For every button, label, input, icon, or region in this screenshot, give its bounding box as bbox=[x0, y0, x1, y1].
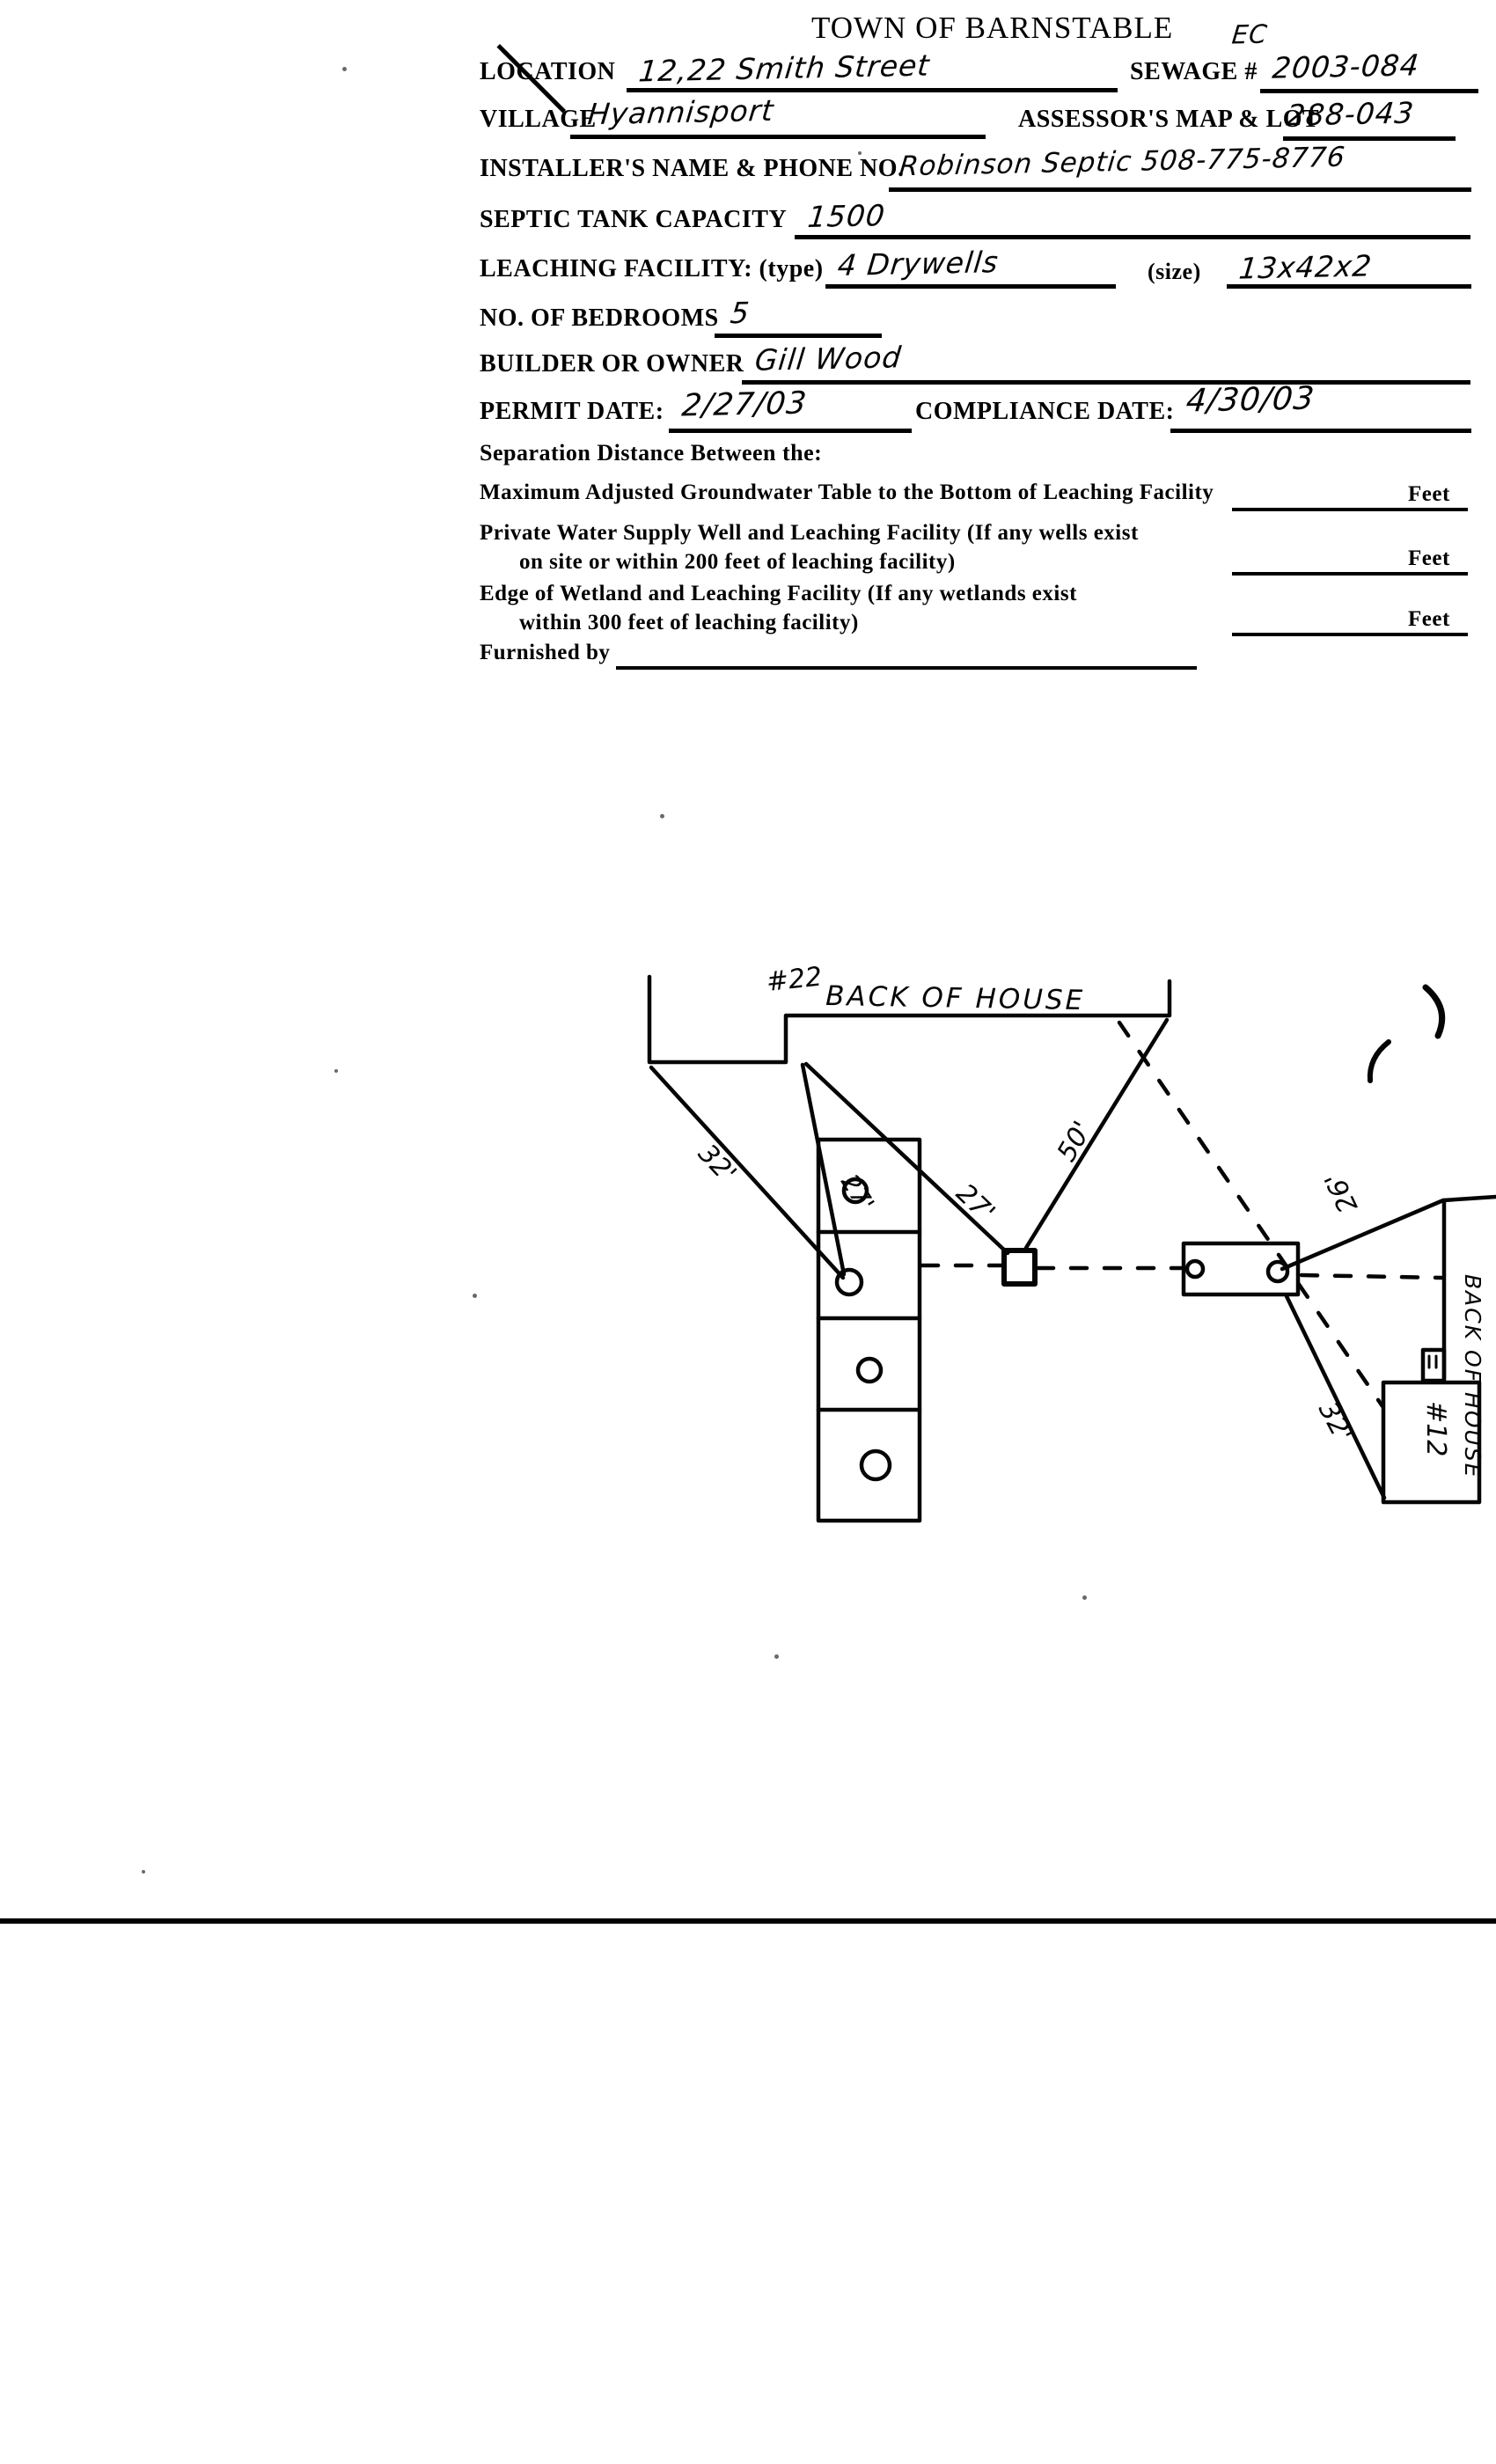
location-value: 12,22 Smith Street bbox=[637, 48, 931, 88]
separation-row1-text: Maximum Adjusted Groundwater Table to th… bbox=[480, 480, 1214, 505]
separation-row3-unit: Feet bbox=[1408, 607, 1450, 632]
scan-speck bbox=[774, 1654, 779, 1659]
septic-capacity-value: 1500 bbox=[806, 198, 887, 234]
permit-date-underline bbox=[669, 429, 912, 433]
builder-underline bbox=[742, 380, 1470, 385]
leaching-label: LEACHING FACILITY: (type) bbox=[480, 255, 824, 283]
separation-row1-unit: Feet bbox=[1408, 482, 1450, 507]
scan-speck bbox=[142, 1870, 145, 1874]
permit-date-label: PERMIT DATE: bbox=[480, 398, 664, 426]
scan-speck bbox=[660, 814, 664, 818]
stray-arc-left bbox=[1370, 1042, 1389, 1081]
page-divider-rule bbox=[0, 1918, 1496, 1924]
furnished-by-label: Furnished by bbox=[480, 641, 610, 665]
dim-line-32-lower bbox=[1287, 1296, 1384, 1498]
leaching-size-value: 13x42x2 bbox=[1237, 248, 1374, 285]
scanned-permit-page: TOWN OF BARNSTABLE EC LOCATION 12,22 Smi… bbox=[0, 0, 1496, 2464]
scan-speck bbox=[858, 151, 862, 155]
septic-capacity-underline bbox=[795, 235, 1470, 239]
house2-steps-ticks bbox=[1429, 1356, 1436, 1368]
scan-speck bbox=[342, 67, 347, 71]
installer-underline bbox=[889, 187, 1471, 192]
bedrooms-value: 5 bbox=[729, 296, 752, 331]
drywell-3-circle bbox=[858, 1359, 881, 1382]
septic-capacity-label: SEPTIC TANK CAPACITY bbox=[480, 206, 787, 234]
bedrooms-label: NO. OF BEDROOMS bbox=[480, 304, 719, 333]
scan-speck bbox=[1082, 1595, 1087, 1600]
scan-speck bbox=[473, 1294, 477, 1298]
builder-label: BUILDER OR OWNER bbox=[480, 350, 744, 378]
dim-line-32-upper bbox=[651, 1067, 843, 1278]
stray-arc-right bbox=[1426, 987, 1442, 1036]
distribution-box bbox=[1004, 1250, 1035, 1284]
assessors-label: ASSESSOR'S MAP & LOT bbox=[1018, 106, 1319, 134]
compliance-date-value: 4/30/03 bbox=[1184, 380, 1316, 419]
handwritten-corner-note: EC bbox=[1230, 19, 1269, 50]
house2-number-label: #12 bbox=[1420, 1401, 1451, 1456]
dim-27-inner-label: 27' bbox=[835, 1169, 880, 1216]
compliance-date-label: COMPLIANCE DATE: bbox=[915, 398, 1174, 426]
dim-26-label: 26' bbox=[1319, 1168, 1364, 1218]
dim-line-26 bbox=[1282, 1197, 1496, 1269]
house2-back-label: BACK OF HOUSE bbox=[1460, 1274, 1485, 1479]
dim-50-label: 50' bbox=[1052, 1116, 1099, 1167]
permit-date-value: 2/27/03 bbox=[680, 385, 809, 423]
location-underline bbox=[627, 88, 1118, 92]
sewage-label: SEWAGE # bbox=[1130, 58, 1258, 86]
tank-cover-left bbox=[1187, 1261, 1203, 1277]
installer-value: Robinson Septic 508-775-8776 bbox=[898, 142, 1346, 183]
separation-row3-text2: within 300 feet of leaching facility) bbox=[519, 611, 859, 635]
drywell-4-circle bbox=[862, 1451, 890, 1479]
separation-row1-line bbox=[1232, 508, 1468, 511]
site-sketch: #22 BACK OF HOUSE 32' 27' 27' 50' 26' 32… bbox=[616, 950, 1496, 1531]
leaching-type-underline bbox=[825, 284, 1116, 289]
village-value: Hyannisport bbox=[586, 93, 775, 132]
location-label: LOCATION bbox=[480, 58, 615, 86]
leaching-size-label: (size) bbox=[1148, 259, 1201, 285]
tank-cover-right bbox=[1268, 1262, 1287, 1281]
separation-heading: Separation Distance Between the: bbox=[480, 440, 822, 466]
installer-label: INSTALLER'S NAME & PHONE NO. bbox=[480, 155, 905, 183]
separation-row2-text2: on site or within 200 feet of leaching f… bbox=[519, 550, 956, 575]
assessors-value: 288-043 bbox=[1285, 95, 1416, 132]
house1-number-label: #22 bbox=[765, 962, 824, 998]
scan-speck bbox=[334, 1069, 338, 1073]
sewage-value: 2003-084 bbox=[1271, 48, 1421, 85]
page-title: TOWN OF BARNSTABLE bbox=[811, 11, 1173, 46]
separation-row2-text: Private Water Supply Well and Leaching F… bbox=[480, 521, 1139, 546]
assessors-underline bbox=[1283, 136, 1456, 141]
separation-row3-text: Edge of Wetland and Leaching Facility (I… bbox=[480, 582, 1077, 606]
village-label: VILLAGE bbox=[480, 106, 597, 134]
house1-back-label: BACK OF HOUSE bbox=[825, 980, 1086, 1016]
builder-value: Gill Wood bbox=[753, 340, 903, 378]
dim-32-lower-label: 32' bbox=[1312, 1397, 1359, 1447]
sewage-underline bbox=[1260, 89, 1478, 93]
dim-32-upper-label: 32' bbox=[692, 1139, 742, 1190]
bedrooms-underline bbox=[715, 334, 882, 338]
separation-row2-line bbox=[1232, 572, 1468, 576]
furnished-by-underline bbox=[616, 666, 1197, 670]
house2-steps bbox=[1423, 1350, 1444, 1381]
separation-row3-line bbox=[1232, 633, 1468, 636]
separation-row2-unit: Feet bbox=[1408, 546, 1450, 571]
leaching-type-value: 4 Drywells bbox=[836, 245, 1001, 282]
dim-27-outer-label: 27' bbox=[950, 1178, 1001, 1228]
village-underline bbox=[570, 135, 986, 139]
compliance-date-underline bbox=[1170, 429, 1471, 433]
